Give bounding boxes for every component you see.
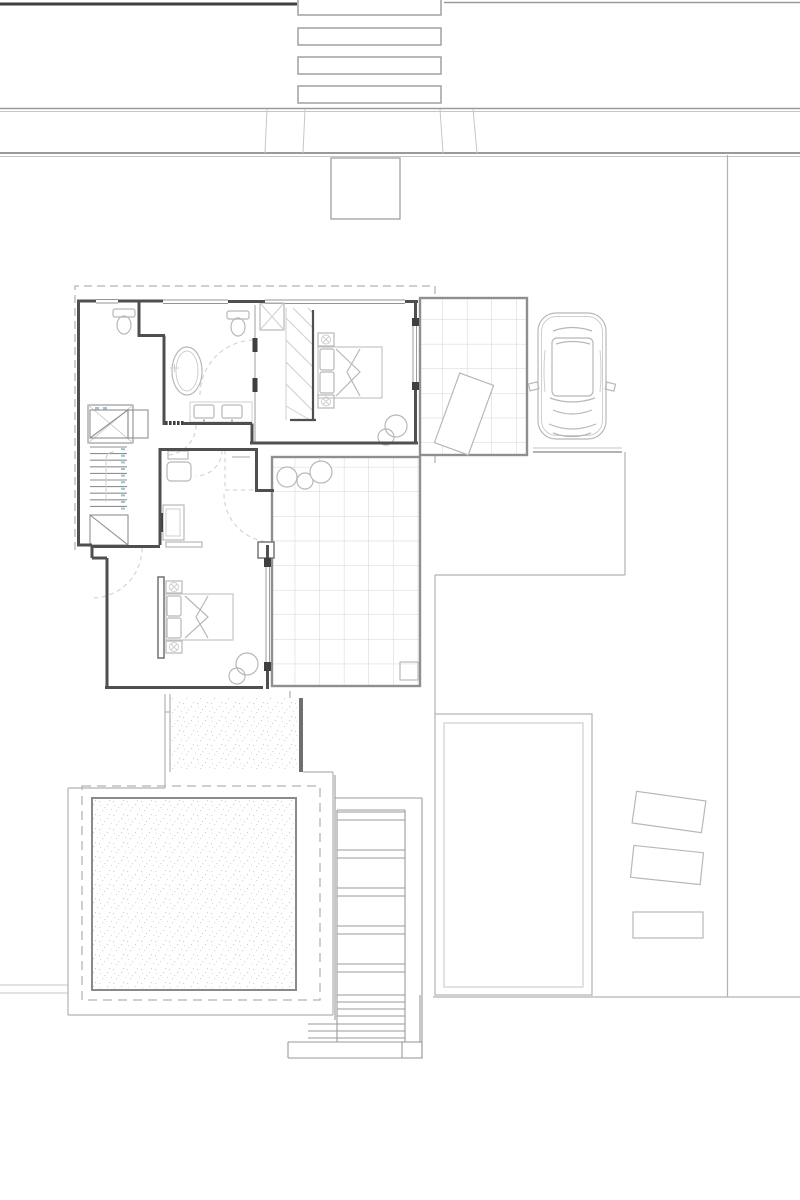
nightstand-1a — [318, 333, 334, 346]
bed-2 — [166, 594, 233, 640]
door-threshold — [165, 421, 184, 425]
entry-landing: entry landing — [331, 158, 400, 219]
nightstand-2a — [166, 581, 182, 593]
plant-bedroom-1 — [378, 415, 407, 445]
pool: swimming pool — [92, 798, 296, 990]
sun-lounger-3 — [633, 912, 703, 938]
terrace-tiled: tiled terrace with planting — [272, 457, 420, 686]
toilet-2 — [227, 311, 249, 336]
bench — [166, 542, 202, 547]
sun-lounger-2 — [631, 845, 704, 884]
street-entry-steps: street entry steps — [298, 0, 441, 103]
staircase: staircase — [90, 410, 148, 545]
dresser — [163, 505, 184, 540]
sun-loungers: three sun loungers — [631, 791, 706, 938]
car-mirror-left — [528, 382, 538, 391]
toilet-1 — [113, 309, 135, 334]
lawn: lawn panel — [435, 714, 592, 995]
car-mirror-right — [605, 382, 615, 391]
sun-lounger-1 — [632, 791, 706, 832]
patio-northeast: tiled patio with doormat — [420, 298, 527, 455]
floor-plan-drawing: residential site plan street with crossi… — [0, 0, 800, 1200]
nightstand-1b — [318, 395, 334, 408]
floor-plan-page: residential site plan street with crossi… — [0, 0, 800, 1200]
gravel-path: gravel path to pool deck — [165, 694, 333, 788]
plant-master — [229, 653, 258, 684]
door-arcs — [92, 340, 272, 598]
bed-1 — [318, 347, 382, 398]
wardrobe — [286, 308, 316, 420]
step-numbers — [121, 448, 125, 509]
driveway — [435, 448, 625, 714]
headboard — [158, 577, 164, 658]
closet-dashed — [225, 450, 256, 490]
armchair — [167, 462, 191, 481]
bedroom-1: bedroom with double bed and wardrobe — [260, 303, 407, 445]
master-bedroom: master bedroom with double bed — [158, 577, 258, 684]
nightstand-2b — [166, 641, 182, 653]
street: street with crossing — [0, 3, 800, 157]
vanity — [190, 402, 252, 422]
car: parked car on driveway — [528, 313, 615, 439]
